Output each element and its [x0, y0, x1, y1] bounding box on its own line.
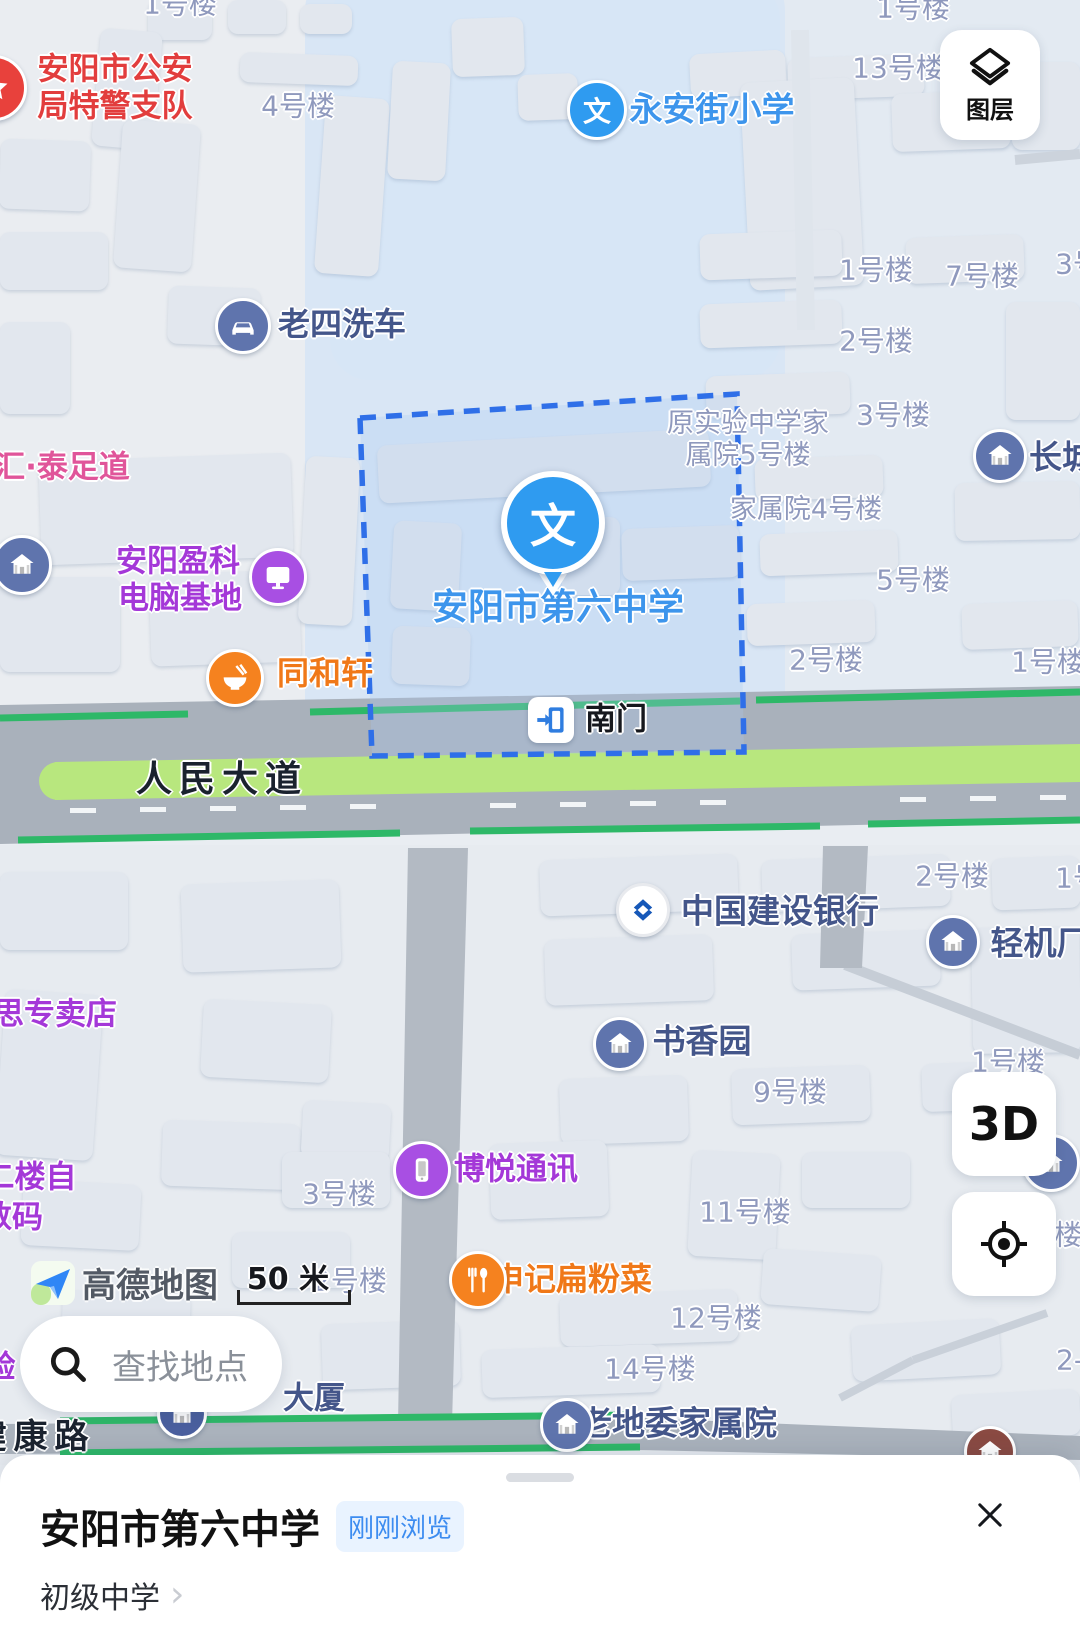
- threed-button-label: 3D: [969, 1097, 1039, 1151]
- map-canvas[interactable]: 1号楼安阳市公安局特警支队4号楼永安街小学1号楼13号楼老四洗车1号楼7号楼3号…: [0, 0, 1080, 1640]
- poi-label[interactable]: 数码: [0, 1202, 43, 1235]
- locate-button[interactable]: [952, 1192, 1056, 1296]
- phone-icon[interactable]: [393, 1141, 451, 1199]
- place-category: 初级中学: [40, 1573, 160, 1617]
- door-arrow-icon: [535, 704, 567, 736]
- scale-bar: [237, 1290, 351, 1305]
- poi-label[interactable]: 申记扁粉菜: [492, 1263, 652, 1297]
- poi-label[interactable]: 同和轩: [277, 657, 373, 691]
- school-pin-tail-inner: [544, 572, 562, 587]
- search-placeholder: 查找地点: [112, 1340, 248, 1389]
- amap-plane-icon: [30, 1260, 76, 1306]
- poi-label[interactable]: 安阳盈科: [116, 546, 240, 579]
- place-title: 安阳市第六中学: [40, 1497, 320, 1555]
- card-drag-handle[interactable]: [506, 1473, 574, 1482]
- search-icon: [46, 1342, 90, 1386]
- search-input[interactable]: 查找地点: [20, 1316, 282, 1412]
- amap-logo: 高德地图: [30, 1258, 218, 1307]
- restaurant-icon[interactable]: [206, 649, 264, 707]
- recently-viewed-badge: 刚刚浏览: [336, 1501, 464, 1552]
- poi-label[interactable]: 验: [0, 1352, 16, 1385]
- estate-icon[interactable]: [540, 1398, 594, 1452]
- poi-label[interactable]: 二楼自: [0, 1162, 77, 1195]
- place-category-row[interactable]: 初级中学 ›: [40, 1573, 184, 1617]
- estate-icon[interactable]: [973, 429, 1027, 483]
- poi-label[interactable]: 长城: [1029, 441, 1080, 476]
- school-pin-marker[interactable]: 文: [501, 471, 605, 575]
- poi-label[interactable]: 老四洗车: [278, 308, 406, 342]
- threed-button[interactable]: 3D: [952, 1072, 1056, 1176]
- estate-icon[interactable]: [926, 915, 980, 969]
- chevron-right-icon: ›: [170, 1577, 184, 1613]
- poi-label[interactable]: 电脑基地: [118, 583, 242, 616]
- school-pin-glyph: 文: [530, 490, 576, 556]
- poi-label[interactable]: 老地委家属院: [579, 1407, 777, 1442]
- locate-target-icon: [973, 1213, 1035, 1275]
- layers-button-label: 图层: [966, 90, 1014, 125]
- school-poi-icon[interactable]: 文: [567, 80, 627, 140]
- gate-icon[interactable]: [528, 697, 574, 743]
- poi-label[interactable]: 汇·泰足道: [0, 452, 130, 485]
- poi-label[interactable]: 思专卖店: [0, 999, 117, 1032]
- poi-label[interactable]: 博悦通讯: [454, 1154, 578, 1187]
- bank-icon[interactable]: [616, 883, 670, 937]
- layers-icon: [967, 46, 1013, 88]
- car-wash-icon[interactable]: [215, 298, 271, 354]
- food-icon[interactable]: [449, 1251, 507, 1309]
- close-icon: [973, 1498, 1007, 1532]
- poi-label[interactable]: 轻机厂: [991, 927, 1080, 962]
- poi-label[interactable]: 永安街小学: [630, 93, 795, 128]
- estate-icon[interactable]: [593, 1017, 647, 1071]
- computer-icon[interactable]: [249, 548, 307, 606]
- road-label: 人民大道: [136, 761, 308, 799]
- close-button[interactable]: [962, 1487, 1018, 1543]
- poi-label[interactable]: 中国建设银行: [681, 895, 879, 930]
- poi-label[interactable]: 局特警支队: [38, 91, 193, 124]
- poi-label[interactable]: 书香园: [653, 1025, 752, 1060]
- layers-button[interactable]: 图层: [940, 30, 1040, 140]
- poi-label[interactable]: 安阳市公安: [38, 54, 193, 87]
- place-card[interactable]: 安阳市第六中学 刚刚浏览 初级中学 ›: [0, 1455, 1080, 1640]
- amap-logo-text: 高德地图: [82, 1258, 218, 1307]
